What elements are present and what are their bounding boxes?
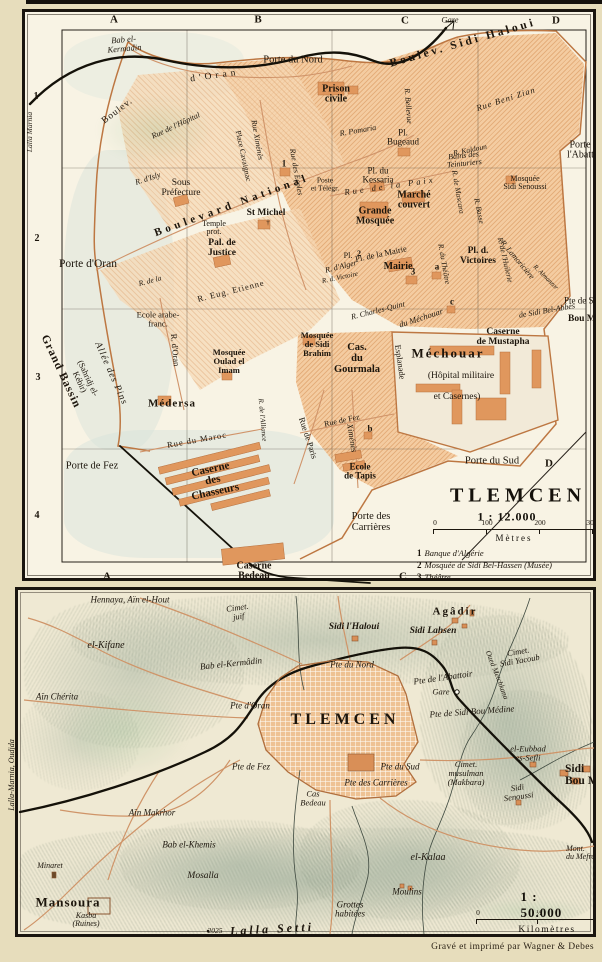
map-page: ABCDACD1234Lalla MarniaBab el- KermadinP… <box>0 0 602 962</box>
city-map-panel <box>22 9 596 581</box>
printer-credit: Gravé et imprimé par Wagner & Debes <box>431 942 594 952</box>
page-top-rule <box>26 0 602 4</box>
environs-map-panel <box>15 587 596 937</box>
